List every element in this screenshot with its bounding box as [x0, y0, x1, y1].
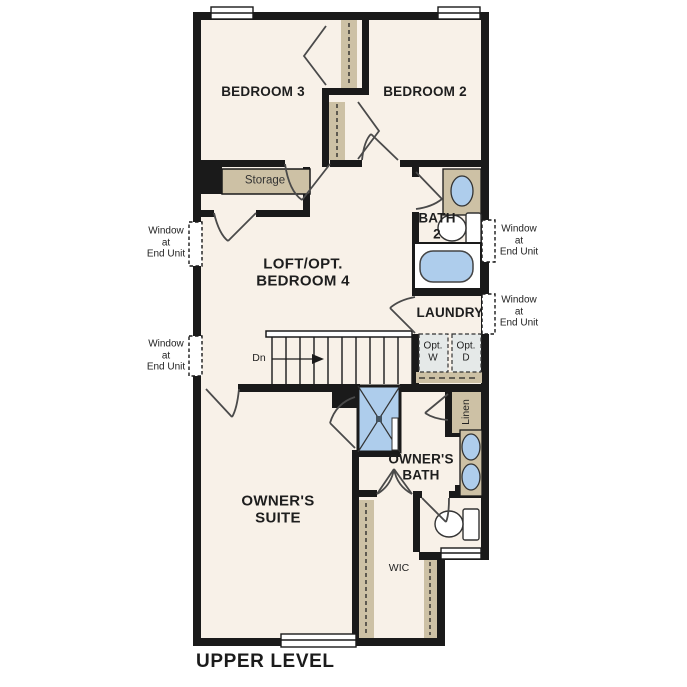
room-label-owners-suite: OWNER'S SUITE [241, 493, 314, 528]
floor-plan: BEDROOM 3 BEDROOM 2 Storage LOFT/OPT. BE… [0, 0, 687, 687]
floor-plan-graphics [0, 0, 687, 687]
owners-vanity-icon [460, 430, 482, 496]
annotation-window-left-upper: Window at End Unit [147, 226, 185, 261]
shower-icon [358, 386, 400, 452]
room-label-owners-bath: OWNER'S BATH [388, 451, 453, 482]
bath2-vanity-sink-icon [443, 169, 481, 215]
label-opt-washer: Opt. W [424, 340, 443, 363]
room-label-wic: WIC [389, 562, 409, 574]
room-label-bedroom3: BEDROOM 3 [221, 84, 305, 100]
label-stairs-down: Dn [252, 352, 265, 364]
closet-rod-zone [329, 102, 345, 160]
bathtub-icon [414, 243, 481, 289]
annotation-window-right-lower: Window at End Unit [500, 295, 538, 330]
annotation-window-right-upper: Window at End Unit [500, 224, 538, 259]
room-label-bedroom2: BEDROOM 2 [383, 84, 467, 100]
room-label-laundry: LAUNDRY [417, 305, 484, 321]
room-label-linen: Linen [460, 399, 472, 425]
wc-toilet-icon [435, 509, 479, 540]
room-label-bath2: BATH 2 [418, 210, 455, 241]
label-opt-dryer: Opt. D [457, 340, 476, 363]
plan-title: UPPER LEVEL [196, 651, 335, 673]
room-label-storage: Storage [245, 174, 285, 187]
annotation-window-left-lower: Window at End Unit [147, 339, 185, 374]
room-label-loft: LOFT/OPT. BEDROOM 4 [256, 256, 350, 291]
